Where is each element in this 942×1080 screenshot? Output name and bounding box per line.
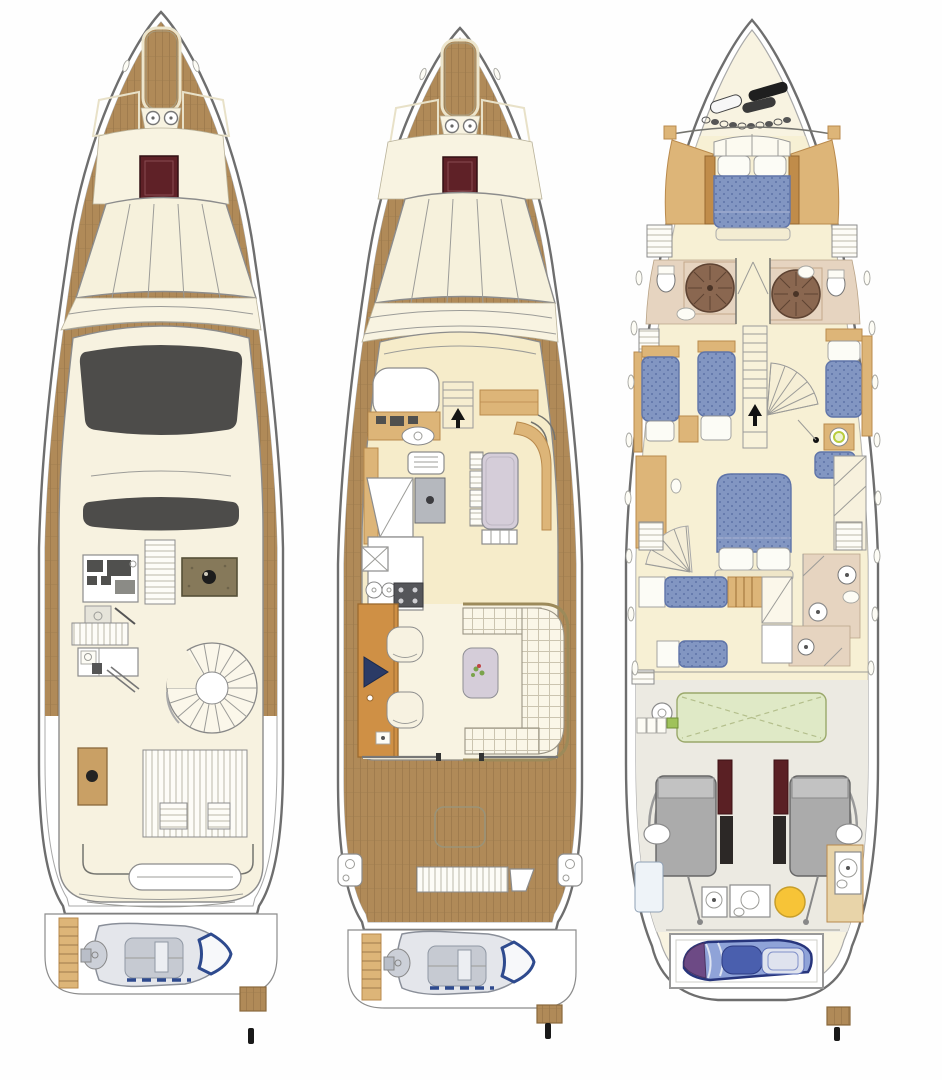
muffler — [836, 824, 862, 844]
main-deck-plan — [318, 24, 602, 1044]
flag-staff — [545, 1023, 551, 1039]
foredeck-sunpad — [378, 134, 542, 199]
master-double-bed — [717, 474, 791, 552]
foredeck-hatch — [140, 156, 178, 200]
muffler — [644, 824, 670, 844]
side-table — [78, 748, 107, 805]
transom-steps — [417, 867, 508, 892]
yacht-three-deck-plans — [0, 0, 942, 1080]
crew-locker — [728, 577, 762, 607]
flag-staff — [834, 1027, 840, 1041]
boarding-step — [240, 987, 266, 1011]
batteries — [667, 718, 678, 728]
dinette-table — [482, 453, 518, 529]
helm-station — [368, 368, 440, 445]
open-sunroof-aft — [83, 497, 239, 531]
bench-seat — [72, 623, 128, 645]
galley-sink — [408, 452, 444, 474]
lower-deck-plan — [610, 16, 896, 1046]
flag-staff — [248, 1028, 254, 1044]
spiral-staircase — [167, 643, 257, 733]
sideboard-tv — [358, 604, 398, 757]
water-heater — [775, 887, 805, 917]
open-sunroof-forward — [80, 345, 242, 435]
flybridge-deck-plan — [29, 8, 293, 1048]
companionway-stairs — [145, 540, 175, 604]
vip-double-bed — [714, 176, 790, 228]
grill-unit — [182, 558, 237, 596]
boarding-step — [827, 1007, 850, 1025]
sun-loungers — [143, 750, 247, 837]
companionway — [443, 382, 473, 428]
foredeck-sunpad — [93, 128, 229, 204]
coffee-table — [463, 648, 498, 698]
basin — [834, 432, 844, 442]
boarding-step — [537, 1005, 562, 1023]
jet-ski — [684, 940, 812, 980]
